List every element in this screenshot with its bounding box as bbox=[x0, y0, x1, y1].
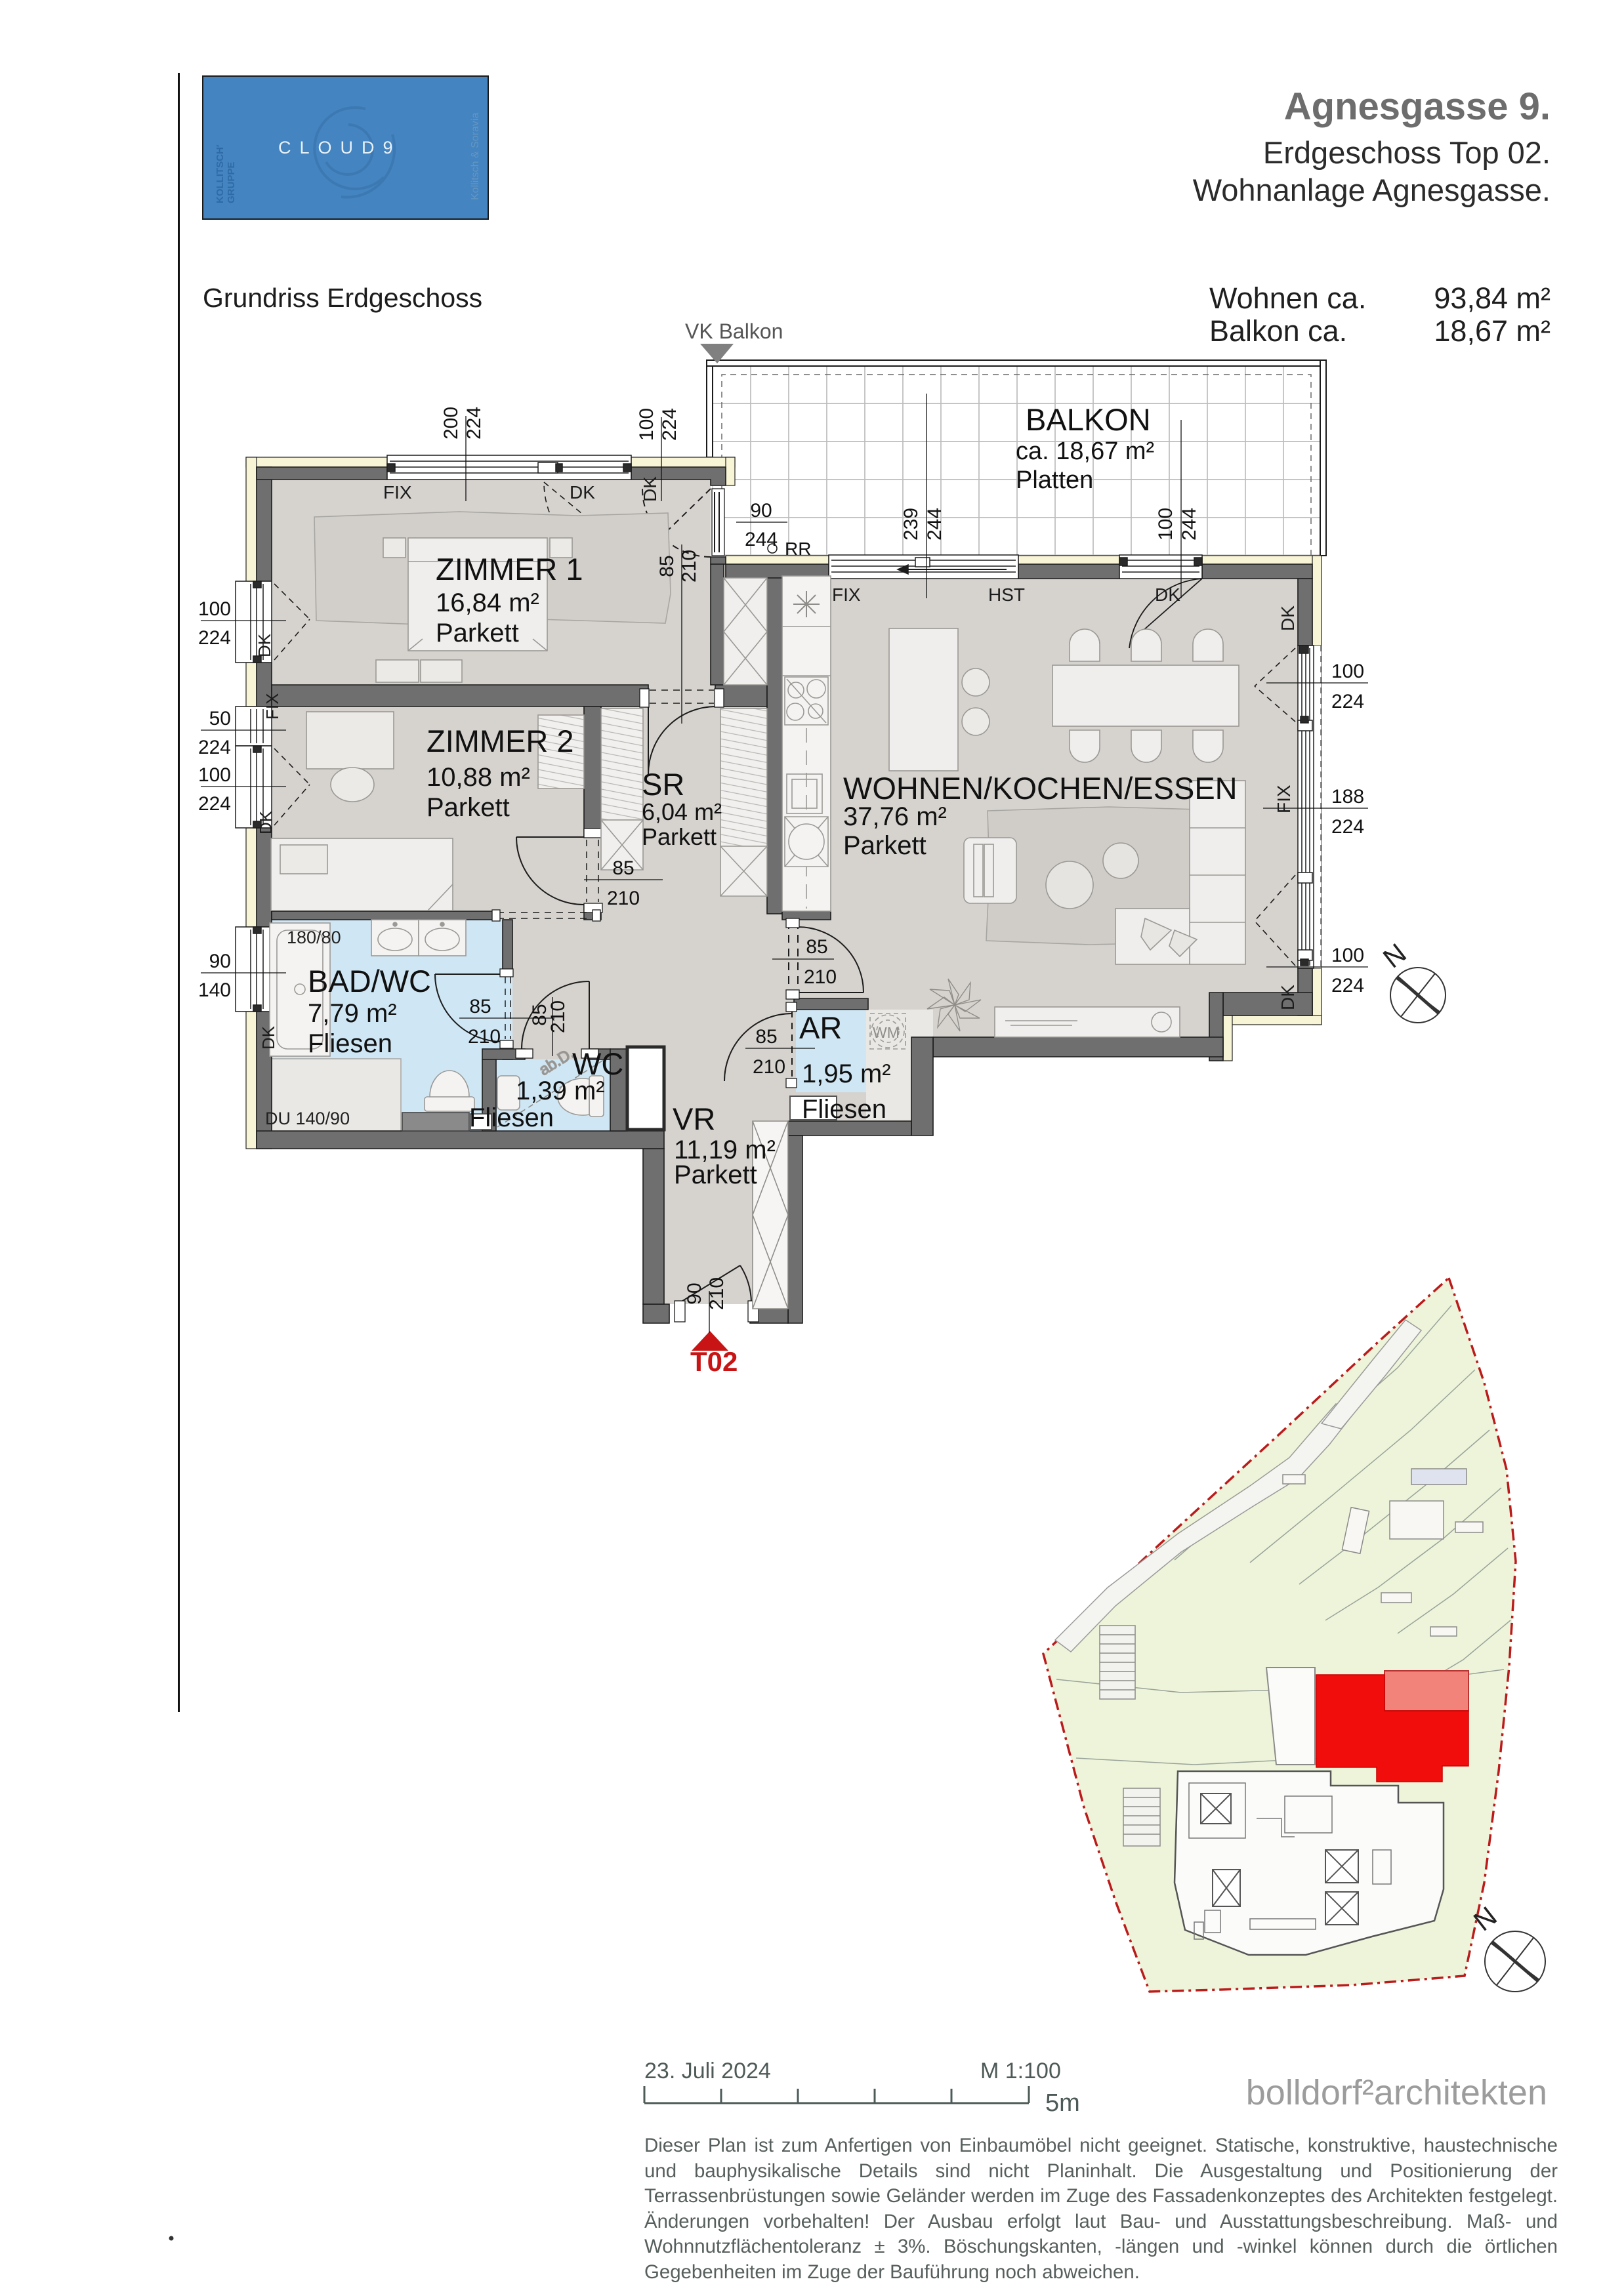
svg-text:VK Balkon: VK Balkon bbox=[685, 319, 783, 343]
svg-text:DK: DK bbox=[1278, 605, 1298, 631]
svg-text:Balkon ca.: Balkon ca. bbox=[1209, 314, 1347, 348]
svg-text:16,84 m²: 16,84 m² bbox=[436, 588, 539, 617]
svg-text:188: 188 bbox=[1331, 786, 1364, 808]
svg-text:VR: VR bbox=[673, 1101, 715, 1136]
svg-text:ZIMMER 1: ZIMMER 1 bbox=[436, 552, 583, 586]
svg-text:T02: T02 bbox=[690, 1346, 738, 1377]
svg-text:KOLLITSCH′: KOLLITSCH′ bbox=[215, 144, 226, 203]
svg-text:HST: HST bbox=[988, 584, 1025, 605]
svg-text:100: 100 bbox=[1331, 661, 1364, 682]
svg-text:85: 85 bbox=[755, 1026, 777, 1048]
svg-text:224: 224 bbox=[1331, 975, 1364, 996]
svg-text:100: 100 bbox=[636, 408, 657, 441]
svg-text:DK: DK bbox=[1155, 584, 1180, 605]
svg-text:Fliesen: Fliesen bbox=[308, 1029, 392, 1058]
svg-text:37,76 m²: 37,76 m² bbox=[843, 802, 947, 831]
svg-text:Fliesen: Fliesen bbox=[469, 1103, 554, 1132]
svg-text:210: 210 bbox=[468, 1026, 501, 1048]
svg-text:100: 100 bbox=[1155, 508, 1176, 541]
svg-text:1,39 m²: 1,39 m² bbox=[516, 1076, 605, 1105]
svg-text:210: 210 bbox=[706, 1277, 728, 1310]
svg-text:FIX: FIX bbox=[383, 482, 412, 502]
svg-text:Parkett: Parkett bbox=[674, 1160, 757, 1189]
svg-text:85: 85 bbox=[612, 857, 634, 879]
svg-text:90: 90 bbox=[684, 1282, 705, 1304]
svg-text:Erdgeschoss Top 02.: Erdgeschoss Top 02. bbox=[1263, 135, 1551, 170]
svg-text:Wohnanlage Agnesgasse.: Wohnanlage Agnesgasse. bbox=[1193, 173, 1551, 207]
svg-text:85: 85 bbox=[656, 555, 678, 577]
svg-text:DK: DK bbox=[255, 633, 274, 657]
svg-text:DK: DK bbox=[570, 482, 595, 502]
svg-text:AR: AR bbox=[799, 1010, 842, 1045]
svg-text:Wohnen ca.: Wohnen ca. bbox=[1209, 281, 1366, 315]
svg-text:90: 90 bbox=[209, 951, 231, 972]
svg-text:244: 244 bbox=[745, 529, 778, 550]
svg-text:210: 210 bbox=[607, 888, 640, 909]
svg-text:85: 85 bbox=[806, 936, 827, 958]
svg-text:90: 90 bbox=[750, 500, 772, 522]
svg-text:DK: DK bbox=[259, 1025, 278, 1050]
svg-text:WM: WM bbox=[873, 1024, 900, 1041]
svg-text:Parkett: Parkett bbox=[436, 619, 519, 647]
svg-text:224: 224 bbox=[198, 627, 231, 649]
svg-text:224: 224 bbox=[463, 407, 485, 440]
svg-text:GRUPPE: GRUPPE bbox=[226, 162, 237, 203]
svg-text:224: 224 bbox=[659, 408, 680, 441]
svg-text:224: 224 bbox=[198, 793, 231, 815]
svg-text:210: 210 bbox=[678, 550, 700, 583]
svg-text:210: 210 bbox=[804, 966, 837, 988]
svg-text:6,04 m²: 6,04 m² bbox=[642, 798, 722, 825]
svg-text:M 1:100: M 1:100 bbox=[980, 2059, 1061, 2083]
svg-text:239: 239 bbox=[900, 508, 922, 541]
svg-text:DK: DK bbox=[640, 476, 660, 502]
svg-text:85: 85 bbox=[469, 996, 491, 1017]
svg-text:BAD/WC: BAD/WC bbox=[308, 964, 431, 998]
svg-text:224: 224 bbox=[1331, 691, 1364, 712]
svg-text:Parkett: Parkett bbox=[642, 823, 717, 850]
svg-text:93,84 m²: 93,84 m² bbox=[1434, 281, 1551, 315]
svg-text:ZIMMER 2: ZIMMER 2 bbox=[427, 724, 574, 758]
svg-text:10,88 m²: 10,88 m² bbox=[427, 763, 530, 792]
svg-text:140: 140 bbox=[198, 979, 231, 1001]
svg-text:Kollitsch & Soravia: Kollitsch & Soravia bbox=[470, 113, 481, 200]
svg-text:200: 200 bbox=[440, 407, 462, 440]
svg-text:224: 224 bbox=[1331, 816, 1364, 838]
svg-text:DU 140/90: DU 140/90 bbox=[265, 1109, 350, 1128]
svg-text:DK: DK bbox=[1278, 985, 1298, 1010]
svg-text:100: 100 bbox=[198, 598, 231, 620]
svg-text:Parkett: Parkett bbox=[843, 831, 927, 860]
svg-text:WOHNEN/KOCHEN/ESSEN: WOHNEN/KOCHEN/ESSEN bbox=[843, 771, 1238, 806]
svg-text:1,95 m²: 1,95 m² bbox=[802, 1059, 891, 1088]
svg-text:SR: SR bbox=[642, 767, 684, 802]
svg-text:100: 100 bbox=[1331, 945, 1364, 966]
svg-text:224: 224 bbox=[198, 737, 231, 758]
svg-text:FIX: FIX bbox=[262, 693, 282, 720]
svg-text:ca. 18,67 m²: ca. 18,67 m² bbox=[1016, 438, 1154, 465]
svg-text:5m: 5m bbox=[1045, 2089, 1080, 2117]
svg-text:7,79 m²: 7,79 m² bbox=[308, 999, 397, 1028]
svg-text:FIX: FIX bbox=[832, 584, 861, 605]
svg-text:Fliesen: Fliesen bbox=[802, 1095, 886, 1124]
svg-text:bolldorf²architekten: bolldorf²architekten bbox=[1246, 2073, 1547, 2112]
svg-text:BALKON: BALKON bbox=[1026, 402, 1151, 437]
svg-text:180/80: 180/80 bbox=[287, 928, 341, 947]
svg-text:Grundriss Erdgeschoss: Grundriss Erdgeschoss bbox=[203, 283, 482, 313]
svg-text:18,67 m²: 18,67 m² bbox=[1434, 314, 1551, 348]
svg-text:210: 210 bbox=[547, 1000, 569, 1033]
svg-text:244: 244 bbox=[924, 508, 946, 541]
svg-text:Parkett: Parkett bbox=[427, 793, 510, 822]
svg-text:Platten: Platten bbox=[1016, 466, 1093, 494]
svg-text:23. Juli 2024: 23. Juli 2024 bbox=[644, 2059, 771, 2083]
svg-text:210: 210 bbox=[753, 1056, 785, 1078]
svg-text:Agnesgasse 9.: Agnesgasse 9. bbox=[1284, 85, 1551, 128]
svg-text:RR: RR bbox=[785, 539, 811, 559]
svg-text:244: 244 bbox=[1178, 508, 1200, 541]
svg-text:DK: DK bbox=[256, 810, 276, 834]
svg-text:100: 100 bbox=[198, 764, 231, 786]
svg-text:CLOUD9: CLOUD9 bbox=[278, 138, 402, 157]
svg-text:50: 50 bbox=[209, 708, 231, 729]
svg-text:FIX: FIX bbox=[1274, 785, 1294, 813]
